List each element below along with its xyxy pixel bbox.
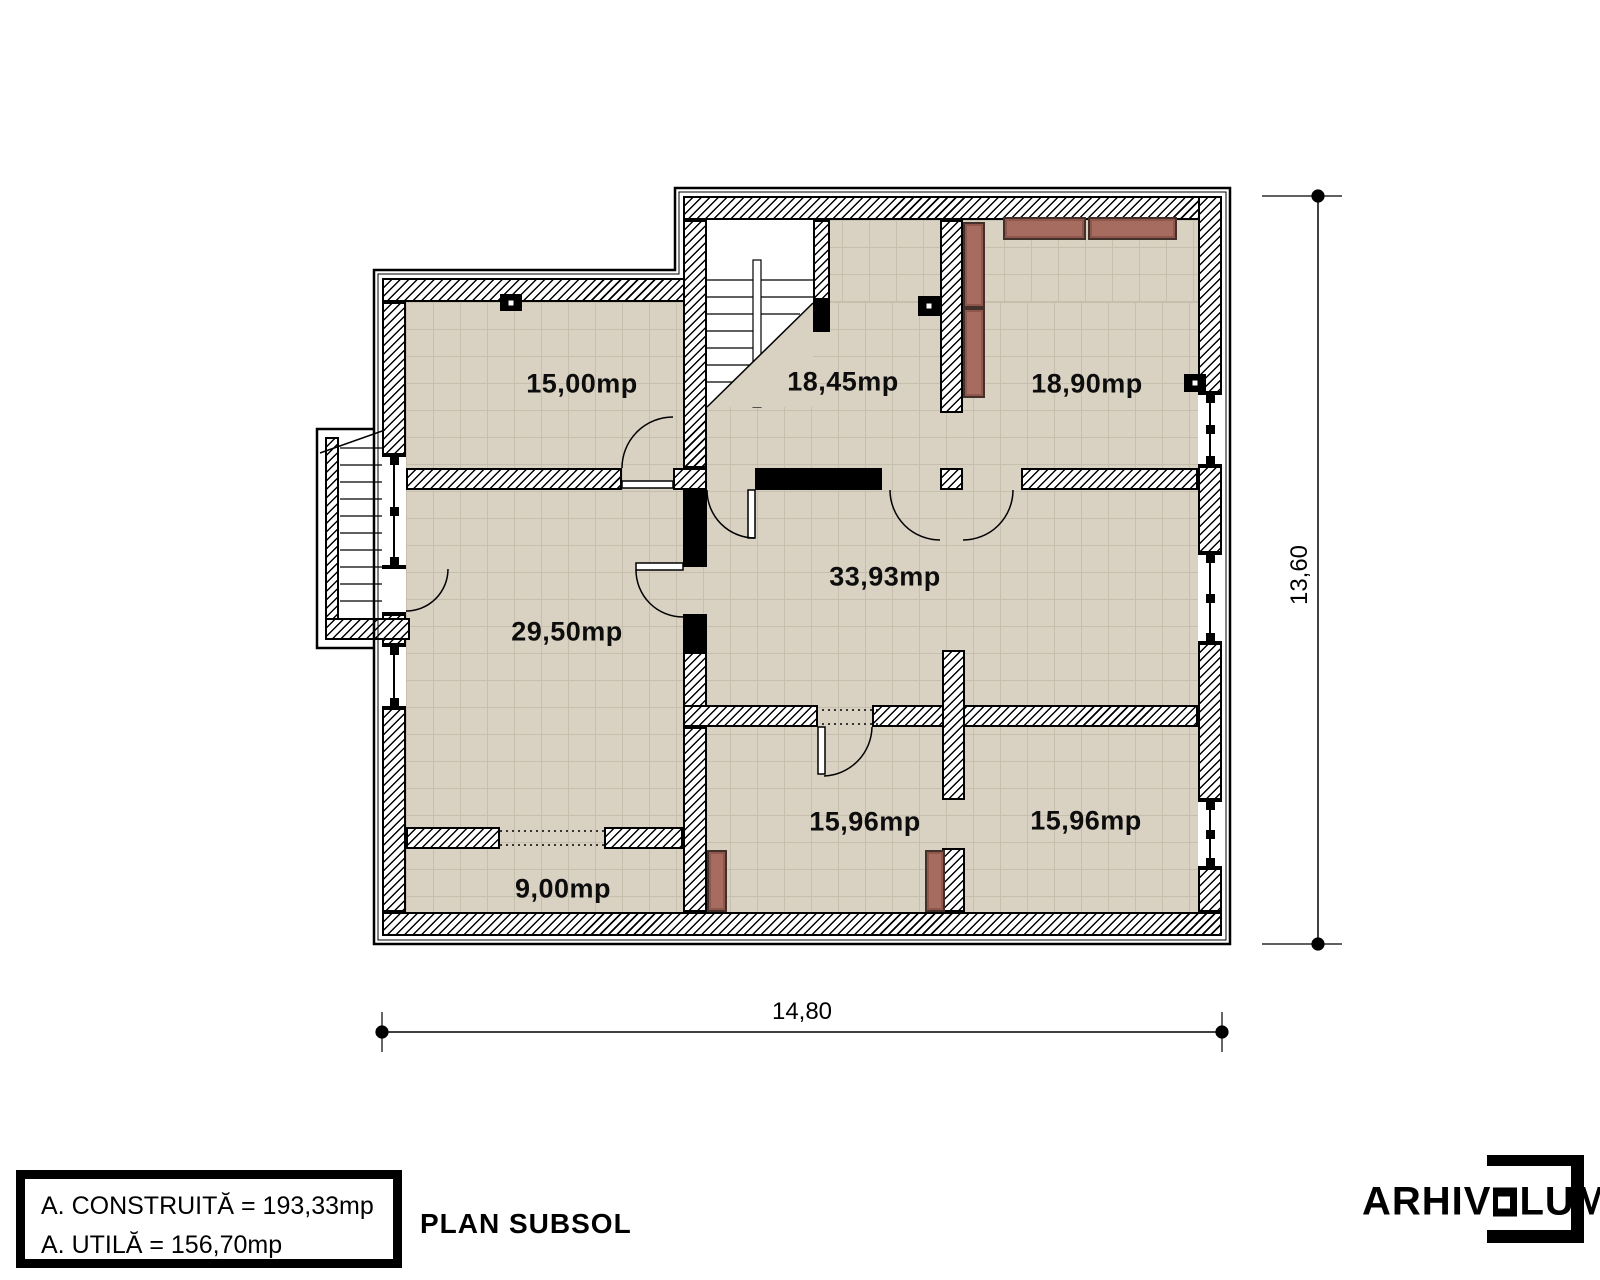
wall-black-column-b <box>683 614 707 652</box>
wall-900-b <box>604 827 683 849</box>
room-area-label: 15,96mp <box>809 807 921 838</box>
wall-h2-a <box>683 705 818 727</box>
entry-door-gap <box>382 567 406 614</box>
window-tick <box>1206 858 1215 867</box>
legend-built-area: A. CONSTRUITĂ = 193,33mp <box>41 1187 393 1226</box>
window-tick <box>390 507 399 516</box>
wall-ext-stair-bottom <box>325 618 410 640</box>
wall-top-left <box>382 278 707 302</box>
wall-right-2 <box>1198 466 1222 553</box>
wall-right-4 <box>1198 868 1222 912</box>
wall-9-mid <box>683 727 707 912</box>
room-area-label: 15,96mp <box>1030 806 1142 837</box>
switch-icon <box>1184 374 1206 392</box>
furniture-top-shelf-1 <box>1003 217 1086 240</box>
furniture-top-shelf-2 <box>1088 217 1177 240</box>
wall-h1-d <box>1021 468 1198 490</box>
window-right-middle <box>1198 553 1222 643</box>
room-area-label: 33,93mp <box>829 562 941 593</box>
wall-stairwell-left <box>683 220 707 468</box>
logo: ARHIV LUM <box>1362 1180 1600 1225</box>
wall-black-column-a <box>683 490 707 567</box>
wall-900-a <box>406 827 500 849</box>
furniture-side-shelf-1 <box>963 222 985 308</box>
window-tick <box>1206 425 1215 434</box>
floor-plan-sheet: 15,00mp 18,45mp 18,90mp 29,50mp 33,93mp … <box>0 0 1600 1280</box>
wall-bottom <box>382 912 1222 936</box>
wall-h2-b <box>872 705 1198 727</box>
window-tick <box>1206 830 1215 839</box>
window-tick <box>390 698 399 707</box>
room-area-label: 18,45mp <box>787 367 899 398</box>
window-tick <box>1206 554 1215 563</box>
window-right-lower <box>1198 800 1222 868</box>
room-area-label: 9,00mp <box>515 874 611 905</box>
logo-prefix: ARHIV <box>1362 1180 1491 1225</box>
plan-title: PLAN SUBSOL <box>420 1208 632 1240</box>
exterior-stairwell <box>339 430 382 618</box>
wall-h1-c <box>940 468 963 490</box>
wall-h1-a <box>406 468 622 490</box>
wall-stairwell-right <box>813 220 830 300</box>
window-tick <box>390 646 399 655</box>
furniture-side-shelf-2 <box>963 308 985 398</box>
window-tick <box>1206 594 1215 603</box>
logo-suffix: LUM <box>1519 1180 1600 1225</box>
switch-icon <box>918 296 940 316</box>
wall-right-1 <box>1198 196 1222 393</box>
wall-right-3 <box>1198 643 1222 800</box>
window-tick <box>1206 394 1215 403</box>
room-area-label: 18,90mp <box>1031 369 1143 400</box>
window-tick <box>390 456 399 465</box>
dimension-height-label: 13,60 <box>1286 545 1314 605</box>
wall-divider-bottom-b <box>942 848 965 912</box>
wall-divider-bottom-a <box>942 650 965 800</box>
wall-black-stair-tip <box>813 300 830 332</box>
wall-left-3 <box>382 708 406 912</box>
window-left-lower <box>382 645 406 708</box>
wall-black-hall-top <box>755 468 882 490</box>
window-left-upper <box>382 455 406 567</box>
radiator-bottom-center <box>707 850 727 912</box>
wall-divider-top-rooms <box>940 220 963 413</box>
room-area-label: 15,00mp <box>526 369 638 400</box>
legend-usable-area: A. UTILĂ = 156,70mp <box>41 1226 393 1265</box>
window-right-upper <box>1198 393 1222 466</box>
switch-icon <box>500 294 522 311</box>
wall-ext-stair-left <box>325 437 339 640</box>
dimension-width-label: 14,80 <box>772 998 832 1026</box>
window-tick <box>1206 456 1215 465</box>
radiator-bottom-right <box>925 850 945 912</box>
logo-o-square-icon <box>1493 1188 1517 1217</box>
window-tick <box>1206 801 1215 810</box>
legend-box: A. CONSTRUITĂ = 193,33mp A. UTILĂ = 156,… <box>16 1170 402 1268</box>
wall-left-1 <box>382 302 406 455</box>
room-area-label: 29,50mp <box>511 617 623 648</box>
window-tick <box>1206 633 1215 642</box>
window-tick <box>390 557 399 566</box>
wall-h1-b <box>673 468 707 490</box>
